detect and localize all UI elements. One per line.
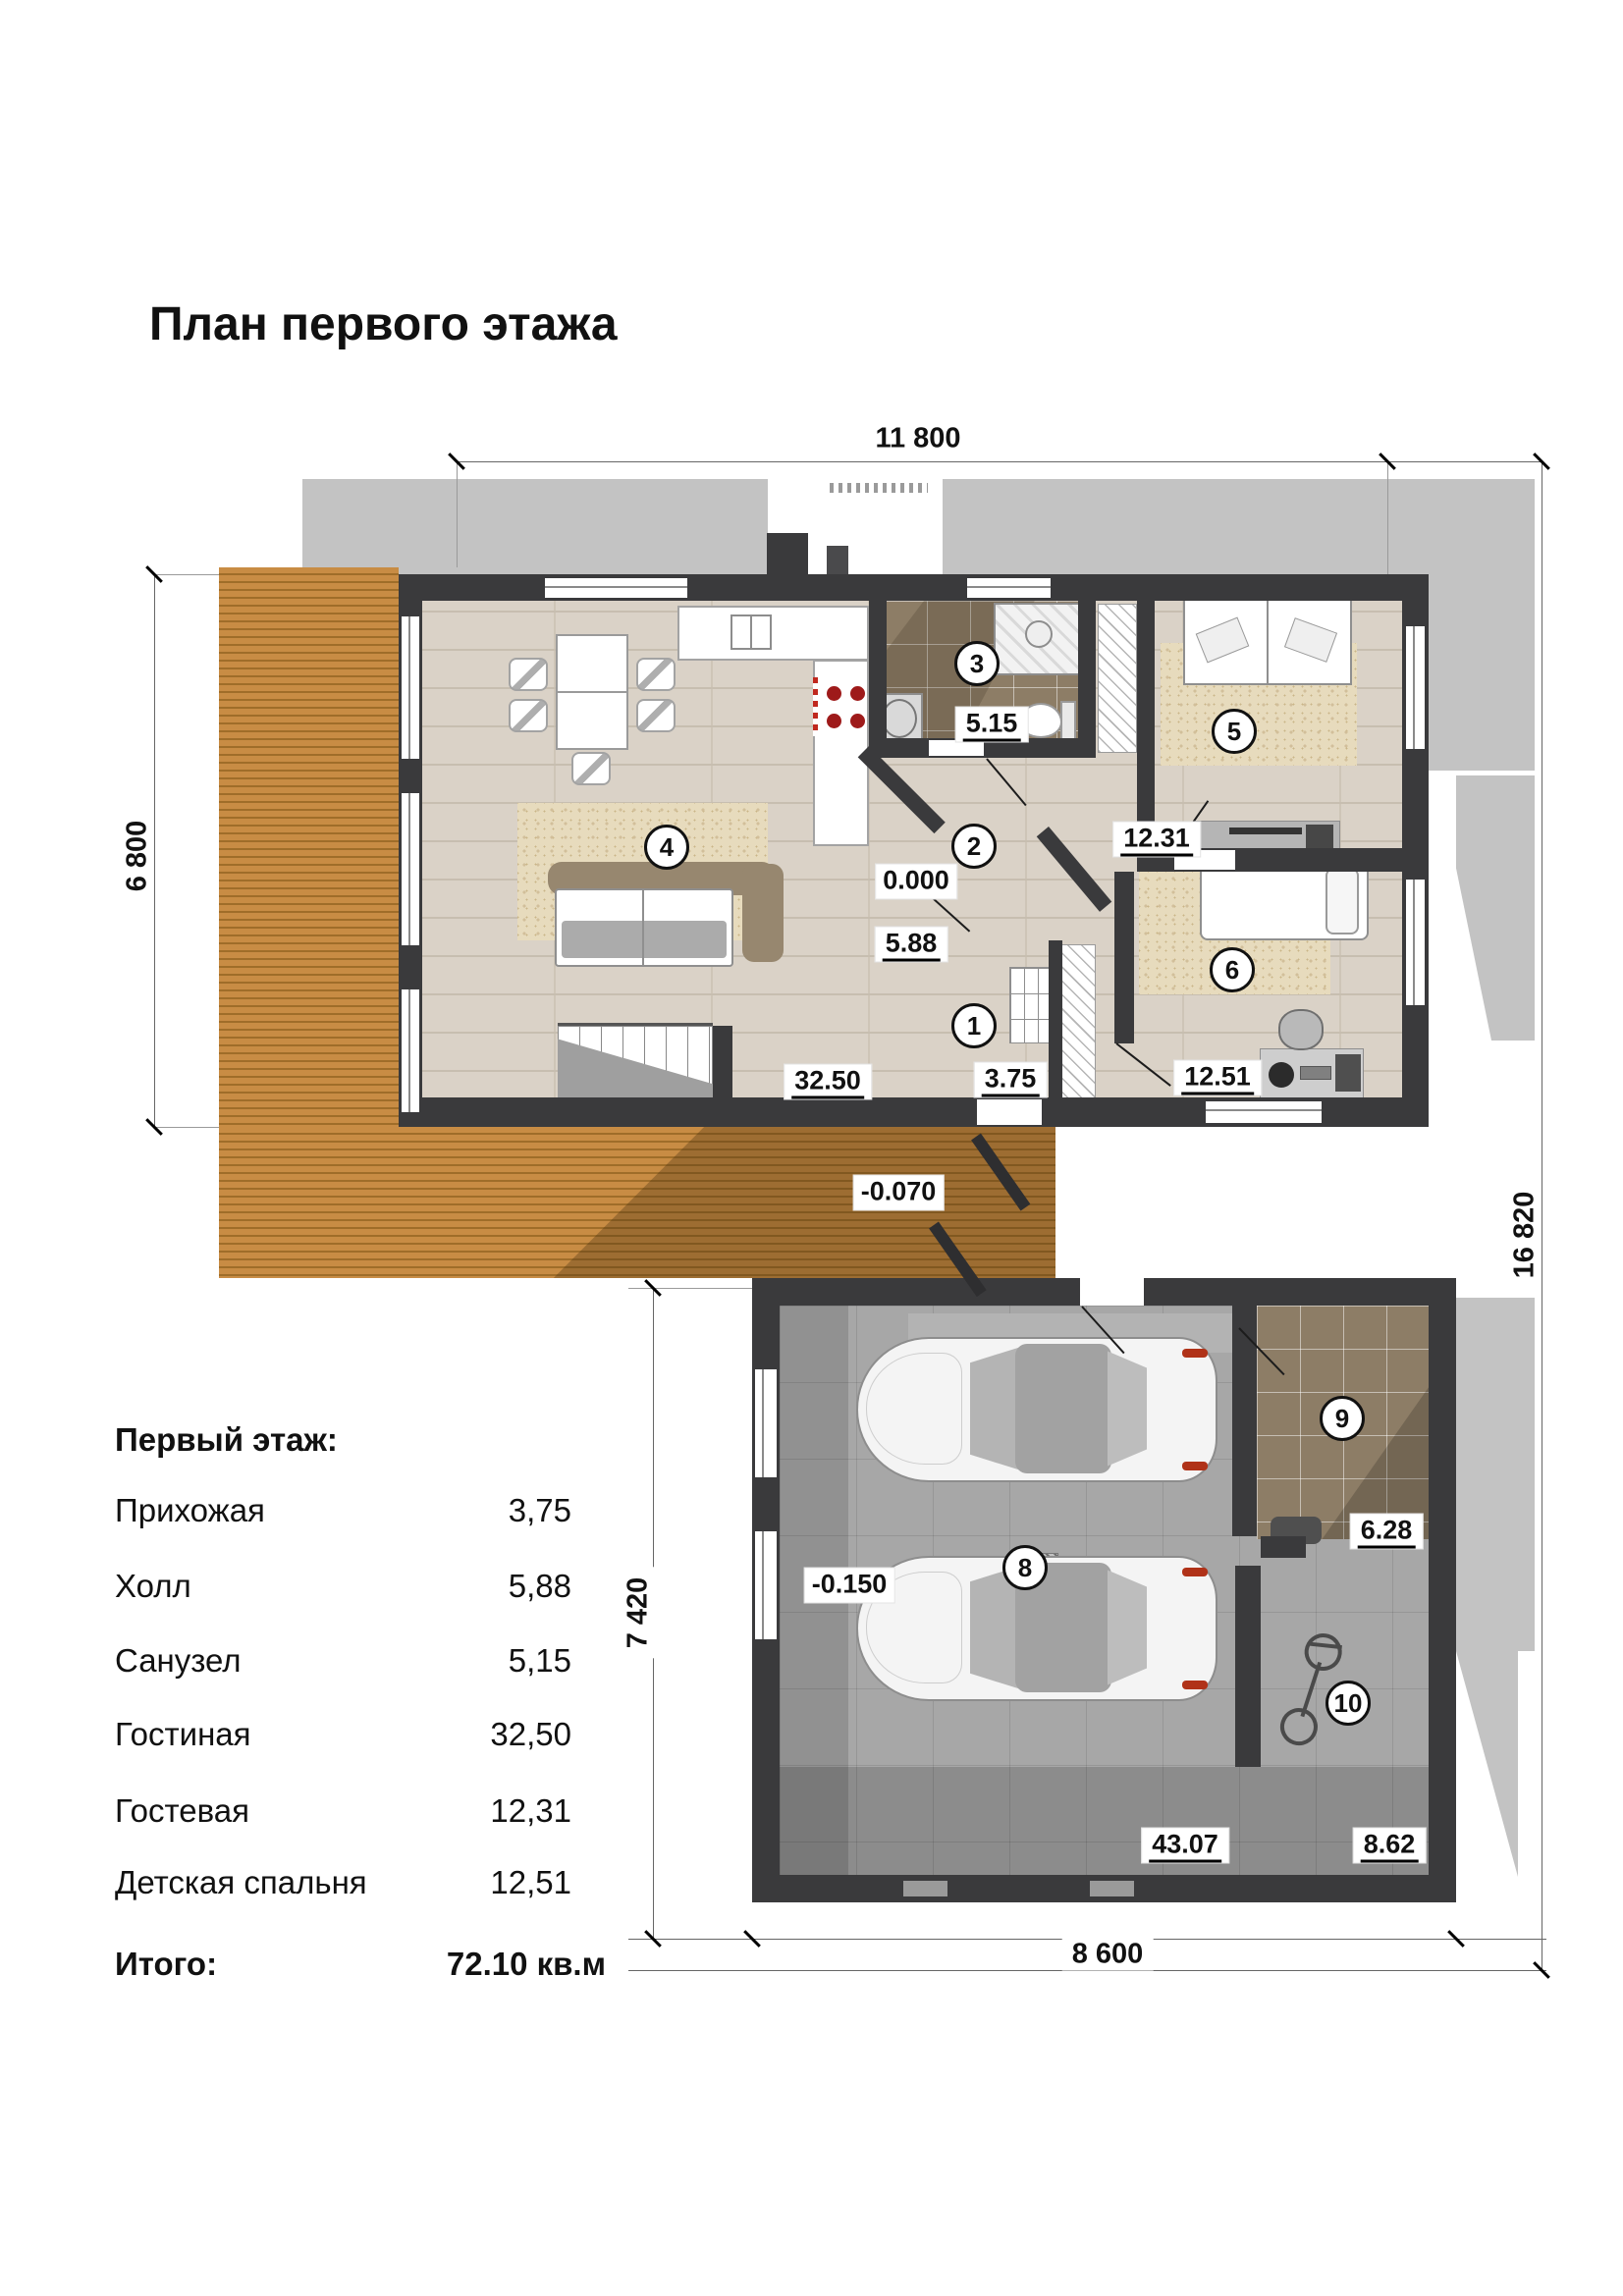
wall-entry-right	[1049, 940, 1062, 1099]
sink-divider	[750, 614, 752, 650]
ext-line	[154, 1127, 219, 1128]
ext-line	[154, 574, 219, 575]
total-label: Итого:	[115, 1946, 217, 1983]
page-title: План первого этажа	[149, 297, 618, 351]
roof-overhang	[1429, 574, 1535, 771]
stove-edge	[813, 677, 818, 736]
area-label-8: 43.07	[1141, 1828, 1229, 1864]
desk-lamp	[1269, 1062, 1294, 1088]
dim-top: 11 800	[865, 423, 970, 455]
car	[856, 1337, 1217, 1482]
window	[402, 616, 419, 759]
chair	[509, 699, 548, 732]
roof-overhang	[1456, 1651, 1518, 1877]
room-badge-5: 5	[1212, 709, 1257, 754]
room-badge-2: 2	[951, 824, 997, 869]
elevation-garage: -0.150	[804, 1568, 895, 1604]
room-name: Холл	[115, 1568, 191, 1605]
wall-bathroom-right	[1078, 601, 1096, 758]
av-device	[1306, 825, 1333, 848]
room-name: Прихожая	[115, 1492, 265, 1529]
area-label-9: 6.28	[1350, 1514, 1424, 1550]
keyboard	[1300, 1066, 1331, 1080]
dim-garage-left: 7 420	[622, 1568, 655, 1659]
legend-row: Детская спальня12,51	[115, 1864, 571, 1901]
chair	[509, 658, 548, 691]
room-name: Санузел	[115, 1642, 242, 1680]
legend-row: Холл5,88	[115, 1568, 571, 1605]
window	[1406, 880, 1425, 1005]
legend-row: Гостевая12,31	[115, 1792, 571, 1830]
legend-row: Прихожая3,75	[115, 1492, 571, 1529]
elevation-terrace: -0.070	[853, 1175, 945, 1211]
closet-hatched	[1098, 604, 1137, 753]
tv	[1229, 828, 1302, 834]
burner	[850, 686, 865, 701]
window	[1406, 626, 1425, 749]
wall-bikeroom-top	[1261, 1536, 1306, 1558]
washing-machine-door	[882, 699, 917, 738]
area-label-2: 5.88	[875, 927, 948, 963]
room-area: 12,31	[490, 1792, 571, 1830]
kitchen-counter	[677, 606, 869, 661]
guest-sofa-line	[1267, 597, 1269, 685]
roof-steps	[830, 483, 928, 493]
dim-right: 16 820	[1509, 1182, 1542, 1289]
window	[1206, 1101, 1322, 1123]
window	[402, 989, 419, 1112]
sofa-line	[642, 888, 644, 967]
wall-techroom-left	[1232, 1306, 1257, 1536]
legend-row: Гостиная32,50	[115, 1716, 571, 1753]
dim-left: 6 800	[122, 811, 154, 902]
window	[967, 578, 1051, 598]
wall-bikeroom-left	[1235, 1566, 1261, 1767]
sofa-side	[742, 864, 784, 962]
sofa-seat	[562, 921, 727, 958]
roof-overhang	[1456, 1298, 1535, 1651]
roof-overhang	[1456, 775, 1535, 1041]
area-label-10: 8.62	[1353, 1828, 1427, 1864]
window	[755, 1531, 777, 1639]
window	[402, 793, 419, 945]
dim-line-left	[154, 574, 155, 1127]
total-value: 72.10 кв.м	[447, 1946, 606, 1983]
legend-heading: Первый этаж:	[115, 1421, 338, 1459]
wall-kids-left	[1114, 872, 1134, 1043]
burner	[850, 714, 865, 728]
toilet-tank	[1060, 701, 1076, 742]
wall-guest-left	[1137, 601, 1155, 856]
garage-gate-fitting	[1090, 1881, 1134, 1896]
legend-row: Санузел5,15	[115, 1642, 571, 1680]
garage-wall-right	[1429, 1278, 1456, 1902]
room-badge-8: 8	[1002, 1545, 1048, 1590]
burner	[827, 714, 841, 728]
room-badge-10: 10	[1325, 1681, 1371, 1726]
roof-overhang	[943, 479, 1535, 574]
dim-line-right	[1542, 461, 1542, 1970]
desk-chair	[1278, 1009, 1324, 1050]
area-label-4: 32.50	[784, 1064, 872, 1100]
legend-total-row: Итого:72.10 кв.м	[115, 1946, 606, 1983]
room-badge-4: 4	[644, 825, 689, 870]
ext-line	[1387, 461, 1388, 574]
stairs-stringer	[713, 1026, 732, 1098]
dim-bottom: 8 600	[1062, 1939, 1154, 1971]
area-label-3: 5.15	[955, 707, 1029, 743]
ext-line	[628, 1288, 752, 1289]
chair	[636, 658, 676, 691]
room-area: 5,88	[509, 1568, 571, 1605]
room-area: 3,75	[509, 1492, 571, 1529]
pillow	[1325, 868, 1359, 934]
room-badge-6: 6	[1210, 947, 1255, 992]
chair	[571, 752, 611, 785]
wall-bathroom-left	[869, 601, 887, 753]
entrance-door-gap	[977, 1099, 1042, 1125]
table-line	[556, 691, 628, 693]
monitor	[1335, 1054, 1361, 1092]
chair	[636, 699, 676, 732]
area-label-5: 12.31	[1112, 822, 1201, 858]
garage-door-gap	[1080, 1278, 1144, 1306]
ext-line	[457, 461, 458, 567]
shower-drain	[1025, 620, 1053, 648]
floor-plan-page: План первого этажа	[0, 0, 1623, 2296]
window	[755, 1369, 777, 1477]
garage-gate-fitting	[903, 1881, 947, 1896]
burner	[827, 686, 841, 701]
window	[545, 578, 687, 598]
area-label-1: 3.75	[974, 1062, 1048, 1098]
room-badge-9: 9	[1320, 1396, 1365, 1441]
room-name: Гостиная	[115, 1716, 251, 1753]
elevation-main: 0.000	[875, 864, 957, 900]
room-name: Гостевая	[115, 1792, 249, 1830]
dim-line-top	[457, 461, 1542, 462]
wardrobe-grid	[1009, 967, 1051, 1043]
room-area: 32,50	[490, 1716, 571, 1753]
room-area: 12,51	[490, 1864, 571, 1901]
room-area: 5,15	[509, 1642, 571, 1680]
room-name: Детская спальня	[115, 1864, 367, 1901]
room-badge-3: 3	[954, 641, 1000, 686]
garage-shadow-bottom	[780, 1767, 1429, 1875]
room-badge-1: 1	[951, 1003, 997, 1048]
roof-overhang	[302, 479, 768, 574]
area-label-6: 12.51	[1173, 1060, 1262, 1096]
